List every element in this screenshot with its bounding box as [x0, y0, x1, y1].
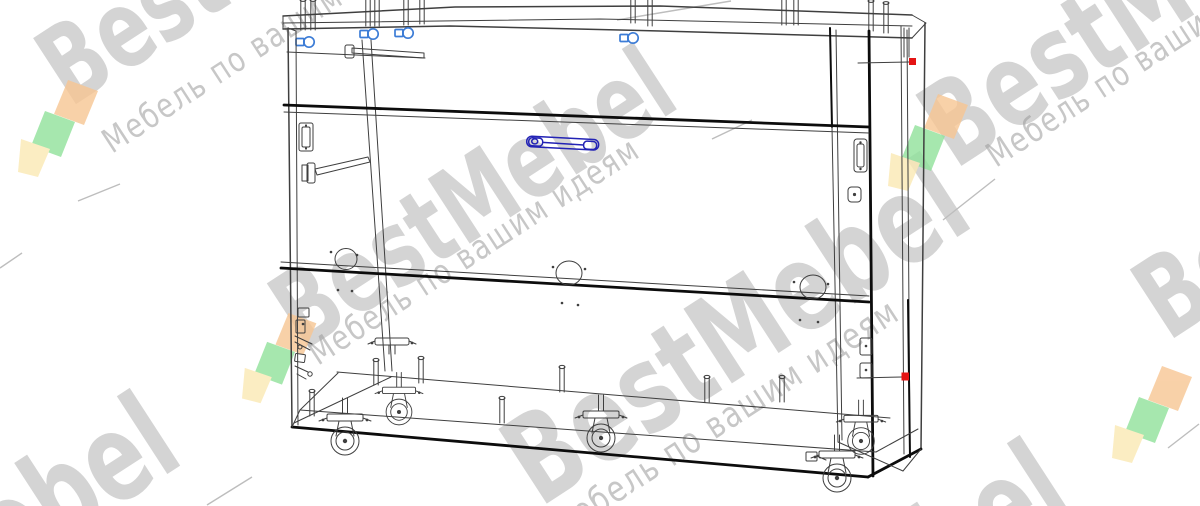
- connector-blocks: [860, 338, 872, 378]
- confirmat-screw: [296, 37, 314, 47]
- dowel-pin: [559, 365, 565, 392]
- confirmat-screw: [360, 29, 378, 39]
- cable-hole: [800, 275, 826, 299]
- alignment-marker: [902, 373, 910, 381]
- top-dowel-pins: [300, 0, 909, 57]
- caster-wheel: [319, 398, 371, 455]
- cabinet-wireframe: [0, 0, 1200, 506]
- alignment-marker: [909, 58, 916, 65]
- right-side-panel: [830, 23, 925, 477]
- dowel-pin: [373, 358, 379, 385]
- dowel-pin: [704, 375, 710, 402]
- dowel-pin: [309, 389, 315, 416]
- caster-wheel: [811, 435, 863, 492]
- right-panel-hardware: [848, 58, 916, 381]
- confirmat-screw: [395, 28, 413, 38]
- confirmat-screws: [296, 28, 638, 47]
- shelf-bracket: [302, 157, 370, 183]
- hinge-plate: [854, 139, 867, 172]
- hinge-keeper: [848, 187, 861, 202]
- center-partition: [362, 40, 392, 371]
- back-panel-edges: [281, 105, 869, 302]
- caster-wheel: [836, 400, 885, 454]
- drawer-handle: [526, 136, 598, 150]
- left-hinge: [299, 123, 313, 151]
- caster-mount-bracket: [368, 338, 416, 354]
- cable-hole: [335, 249, 357, 270]
- confirmat-screw: [620, 33, 638, 43]
- dowel-pin: [779, 375, 785, 402]
- caster-wheel: [575, 395, 627, 452]
- assembly-drawing-canvas: BestMebelBestMebelBestMebelBestMebelBest…: [0, 0, 1200, 506]
- cable-hole: [556, 261, 582, 285]
- dowel-pin: [499, 396, 505, 423]
